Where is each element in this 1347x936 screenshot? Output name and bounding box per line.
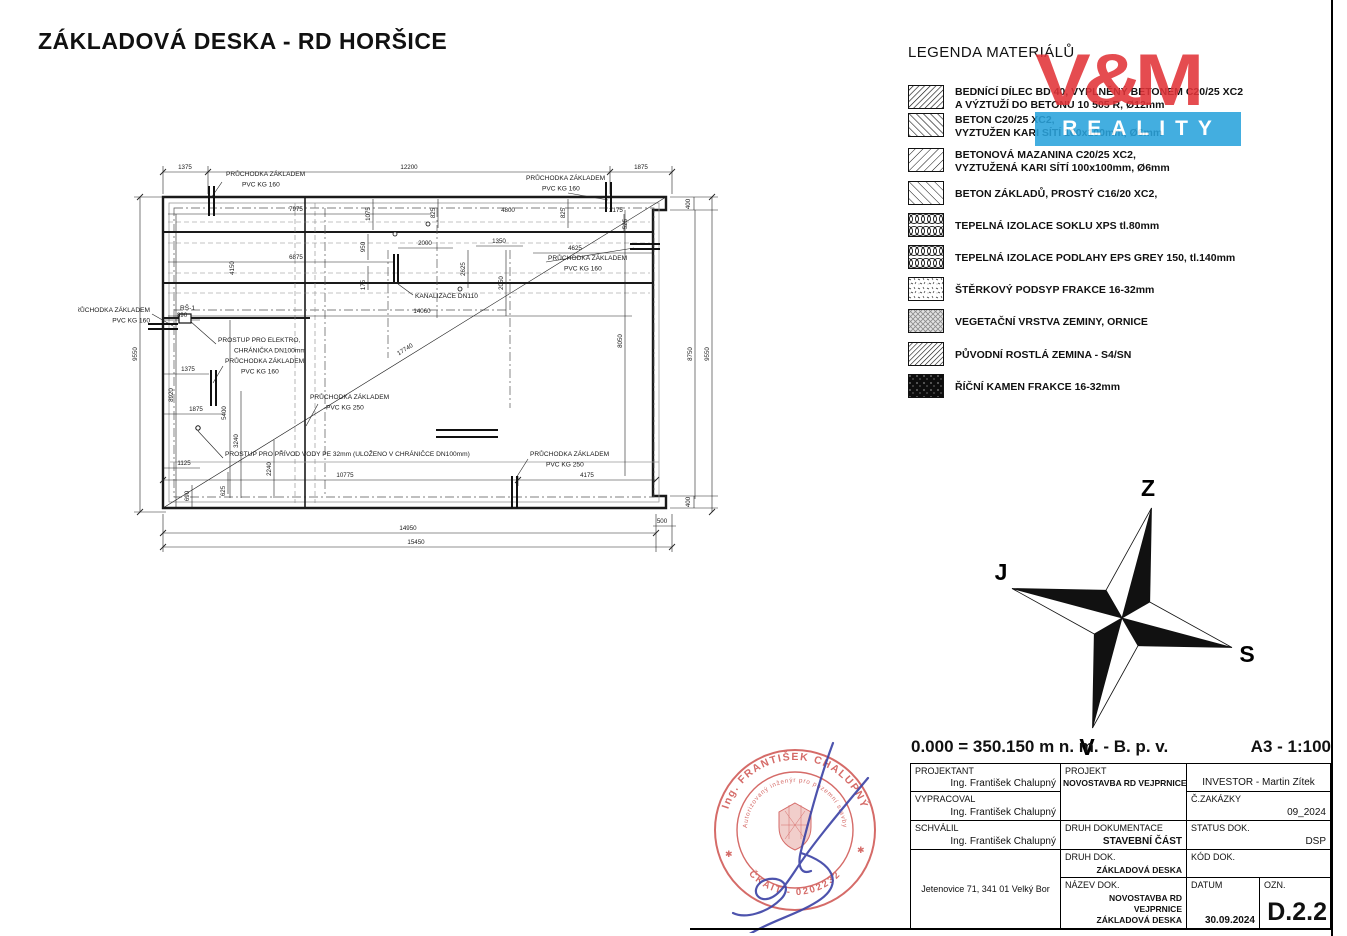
cell-kod-dok: KÓD DOK. [1187, 850, 1330, 878]
plan-annotation: PROSTUP PRO PŘÍVOD VODY PE 32mm (ULOŽENO… [225, 449, 470, 458]
hatch-swatch-mazanina [908, 148, 944, 172]
annotation-leader-lines [152, 182, 634, 478]
plan-annotation: PRŮCHODKA ZÁKLADEMPVC KG 250 [530, 449, 609, 469]
cell-label: DATUM [1191, 880, 1255, 890]
cell-address: Jetenovice 71, 341 01 Velký Bor [911, 850, 1060, 928]
cell-datum: DATUM 30.09.2024 [1187, 878, 1259, 928]
legend-label: BETON ZÁKLADŮ, PROSTÝ C16/20 XC2, [955, 188, 1157, 201]
cell-label: DRUH DOKUMENTACE [1065, 823, 1182, 833]
hatch-swatch-ricni-kamen [908, 374, 944, 398]
cell-status-dok: STATUS DOK. DSP [1187, 821, 1330, 850]
dimension-label: 400 [685, 496, 692, 507]
dimension-label: 890 [177, 312, 188, 319]
dimension-label: 8920 [168, 388, 175, 402]
dimension-label: 6875 [289, 254, 303, 261]
dimension-label: 4175 [580, 472, 594, 479]
dimension-label: 1375 [178, 164, 192, 171]
dimension-label: 625 [220, 485, 227, 496]
dimension-label: 8050 [617, 334, 624, 348]
stamp-star-right: ✱ [857, 845, 865, 855]
dimension-label: 1075 [365, 207, 372, 221]
plan-annotation: PRŮCHODKA ZÁKLADEMPVC KG 250 [310, 392, 389, 412]
cell-label: Č.ZAKÁZKY [1191, 794, 1326, 804]
legend-label: TEPELNÁ IZOLACE SOKLU XPS tl.80mm [955, 220, 1159, 233]
legend-item: ŘÍČNÍ KAMEN FRAKCE 16-32mm [908, 374, 1120, 398]
cell-label: OZN. [1264, 880, 1326, 890]
cell-label: PROJEKTANT [915, 766, 1056, 776]
investor-value: INVESTOR - Martin Zítek [1202, 777, 1315, 788]
cell-label: STATUS DOK. [1191, 823, 1326, 833]
cell-investor: INVESTOR - Martin Zítek [1187, 764, 1330, 792]
title-block-col2: PROJEKT NOVOSTAVBA RD VEJPRNICE DRUH DOK… [1061, 764, 1187, 928]
compass-rose: Z J S V [985, 468, 1285, 768]
cell-value: DSP [1189, 836, 1326, 847]
cell-ozn: OZN. D.2.2 [1259, 878, 1330, 928]
cell-druh-dokumentace: DRUH DOKUMENTACE STAVEBNÍ ČÁST [1061, 821, 1186, 850]
foundation-plan-drawing: 1375122001875797510758254800825217552540… [78, 158, 738, 558]
dimension-label: 1350 [492, 238, 506, 245]
cell-label: PROJEKT [1065, 766, 1182, 776]
plan-annotation: PROSTUP PRO ELEKTRO,CHRÁNIČKA DN100mm [218, 337, 306, 355]
legend-item: TEPELNÁ IZOLACE PODLAHY EPS GREY 150, tl… [908, 245, 1235, 269]
legend-item: ŠTĚRKOVÝ PODSYP FRAKCE 16-32mm [908, 277, 1154, 301]
title-block-col3: INVESTOR - Martin Zítek Č.ZAKÁZKY 09_202… [1187, 764, 1330, 928]
legend-item: TEPELNÁ IZOLACE SOKLU XPS tl.80mm [908, 213, 1159, 237]
cell-label: VYPRACOVAL [915, 794, 1056, 804]
cell-projekt: PROJEKT NOVOSTAVBA RD VEJPRNICE [1061, 764, 1186, 821]
elevation-datum: 0.000 = 350.150 m n. m. - B. p. v. [911, 737, 1168, 757]
legend-label: VEGETAČNÍ VRSTVA ZEMINY, ORNICE [955, 316, 1148, 329]
dimension-label: 2625 [460, 262, 467, 276]
elevation-row: 0.000 = 350.150 m n. m. - B. p. v. A3 - … [911, 737, 1331, 757]
plan-annotation: PRŮCHODKA ZÁKLADEMPVC KG 160 [526, 173, 605, 193]
hatch-swatch-ornice [908, 309, 944, 333]
dimension-label: 175 [360, 279, 367, 290]
date-value: 30.09.2024 [1189, 915, 1255, 926]
cell-druh-dok: DRUH DOK. ZÁKLADOVÁ DESKA [1061, 850, 1186, 878]
plan-annotation: KANALIZACE DN110 [415, 293, 478, 300]
cell-value: ZÁKLADOVÁ DESKA [1063, 865, 1182, 875]
compass-label-west: Z [1141, 475, 1155, 501]
title-block: PROJEKTANT Ing. František Chalupný VYPRA… [910, 763, 1331, 929]
cell-schvalil: SCHVÁLIL Ing. František Chalupný [911, 821, 1060, 850]
dimension-label: 15450 [407, 539, 425, 546]
legend-item: BETONOVÁ MAZANINA C20/25 XC2,VYZTUŽENÁ K… [908, 148, 1170, 175]
plan-annotation: RŠ-1 [180, 303, 195, 312]
dimension-label: 14060 [413, 308, 431, 315]
dimension-label: 14950 [399, 525, 417, 532]
dimension-label: 8750 [687, 347, 694, 361]
legend-label: TEPELNÁ IZOLACE PODLAHY EPS GREY 150, tl… [955, 252, 1235, 265]
dimension-label: 825 [430, 207, 437, 218]
cell-vypracoval: VYPRACOVAL Ing. František Chalupný [911, 792, 1060, 821]
company-address: Jetenovice 71, 341 01 Velký Bor [921, 884, 1050, 894]
cell-zakazka: Č.ZAKÁZKY 09_2024 [1187, 792, 1330, 821]
stamp-star-left: ✱ [725, 849, 733, 859]
legend-item: VEGETAČNÍ VRSTVA ZEMINY, ORNICE [908, 309, 1148, 333]
dimension-label: 400 [685, 198, 692, 209]
dimension-label: 3240 [233, 434, 240, 448]
dimension-label: 2000 [418, 240, 432, 247]
drawing-number: D.2.2 [1267, 898, 1327, 927]
dimension-label: 1875 [189, 406, 203, 413]
hatch-swatch-sterk [908, 277, 944, 301]
hatch-swatch-eps [908, 245, 944, 269]
compass-label-north: S [1239, 641, 1254, 667]
sheet-border-bottom [690, 928, 1332, 930]
cell-value: STAVEBNÍ ČÁST [1063, 836, 1182, 847]
cell-nazev-dok: NÁZEV DOK. NOVOSTAVBA RD VEJPRNICE ZÁKLA… [1061, 878, 1186, 928]
legend-label: ŘÍČNÍ KAMEN FRAKCE 16-32mm [955, 381, 1120, 394]
dimension-label: 1125 [177, 460, 191, 467]
dimension-label: 2175 [609, 207, 623, 214]
legend-label: BETONOVÁ MAZANINA C20/25 XC2, [955, 149, 1170, 162]
vm-reality-logo: V&M REALITY [1035, 50, 1241, 146]
legend-item: BETON ZÁKLADŮ, PROSTÝ C16/20 XC2, [908, 181, 1157, 205]
cell-value: NOVOSTAVBA RD VEJPRNICE [1063, 778, 1182, 788]
hatch-swatch-rostla-zemina [908, 342, 944, 366]
legend-label: PŮVODNÍ ROSTLÁ ZEMINA - S4/SN [955, 349, 1131, 362]
cell-label: SCHVÁLIL [915, 823, 1056, 833]
title-block-col1: PROJEKTANT Ing. František Chalupný VYPRA… [911, 764, 1061, 928]
cell-value: Ing. František Chalupný [913, 807, 1056, 818]
cell-projektant: PROJEKTANT Ing. František Chalupný [911, 764, 1060, 792]
sheet-border-right [1331, 0, 1333, 936]
hatch-swatch-beton-zakladu [908, 181, 944, 205]
cell-value: NOVOSTAVBA RD VEJPRNICE ZÁKLADOVÁ DESKA [1061, 893, 1182, 926]
plan-annotation: PRŮCHODKA ZÁKLADEMPVC KG 160 [226, 169, 305, 189]
cell-label: NÁZEV DOK. [1065, 880, 1182, 890]
legend-label: VYZTUŽENÁ KARI SÍTÍ 100x100mm, Ø6mm [955, 162, 1170, 175]
hatch-swatch-beton [908, 113, 944, 137]
plan-annotation: PRŮCHODKA ZÁKLADEMPVC KG 160 [78, 305, 150, 325]
cell-value: Ing. František Chalupný [913, 778, 1056, 789]
dimension-label: 825 [560, 207, 567, 218]
dimension-label: 10775 [336, 472, 354, 479]
dimension-label: 4800 [501, 207, 515, 214]
cell-datum-ozn: DATUM 30.09.2024 OZN. D.2.2 [1187, 878, 1330, 928]
drawing-sheet: { "title": "ZÁKLADOVÁ DESKA - RD HORŠICE… [0, 0, 1347, 936]
dimension-label: 2240 [266, 462, 273, 476]
dimension-label: 2050 [498, 276, 505, 290]
plan-annotation: PRŮCHODKA ZÁKLADEMPVC KG 160 [225, 356, 304, 376]
hatch-swatch-bednici-dilec [908, 85, 944, 109]
dimension-label: 525 [622, 218, 629, 229]
hatch-swatch-xps [908, 213, 944, 237]
dimension-label: 12200 [400, 164, 418, 171]
compass-label-south: J [995, 559, 1008, 585]
legend-item: PŮVODNÍ ROSTLÁ ZEMINA - S4/SN [908, 342, 1131, 366]
dimension-label: 1375 [181, 366, 195, 373]
dimension-label: 5400 [221, 406, 228, 420]
dimension-label: 9550 [132, 347, 139, 361]
dimension-label-layer: 1375122001875797510758254800825217552540… [132, 164, 711, 546]
cell-label: KÓD DOK. [1191, 852, 1326, 862]
legend-label: ŠTĚRKOVÝ PODSYP FRAKCE 16-32mm [955, 284, 1154, 297]
dimension-label: 1875 [634, 164, 648, 171]
penetration-symbols [148, 182, 660, 508]
cell-value: Ing. František Chalupný [913, 836, 1056, 847]
cell-value: 09_2024 [1189, 807, 1326, 818]
logo-vm-text: V&M [1035, 50, 1274, 111]
dimension-label: 17740 [396, 342, 415, 357]
cell-label: DRUH DOK. [1065, 852, 1182, 862]
dimension-label: 500 [657, 518, 668, 525]
page-title: ZÁKLADOVÁ DESKA - RD HORŠICE [38, 28, 447, 55]
dimension-label: 4150 [229, 261, 236, 275]
dimension-label: 9550 [704, 347, 711, 361]
engineer-stamp: Ing. FRANTIŠEK CHALUPNÝ Autorizovaný inž… [693, 733, 903, 933]
dimension-label: 950 [360, 241, 367, 252]
document-name-line1: NOVOSTAVBA RD VEJPRNICE [1061, 893, 1182, 915]
document-name-line2: ZÁKLADOVÁ DESKA [1061, 915, 1182, 926]
dimension-label: 4625 [568, 245, 582, 252]
dimension-label: 690 [184, 490, 191, 501]
format-scale: A3 - 1:100 [1251, 737, 1331, 757]
dimension-label: 7975 [289, 206, 303, 213]
